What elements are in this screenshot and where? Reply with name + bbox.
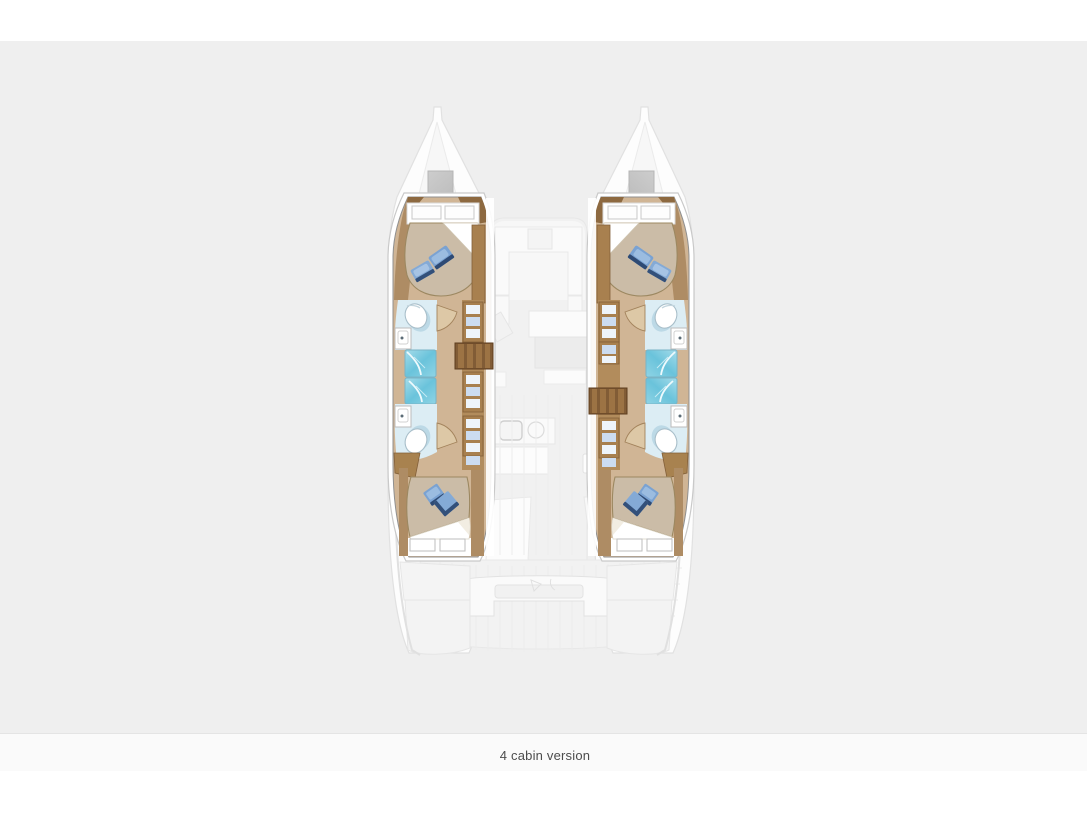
svg-text:4 cabin version: 4 cabin version bbox=[500, 748, 590, 763]
